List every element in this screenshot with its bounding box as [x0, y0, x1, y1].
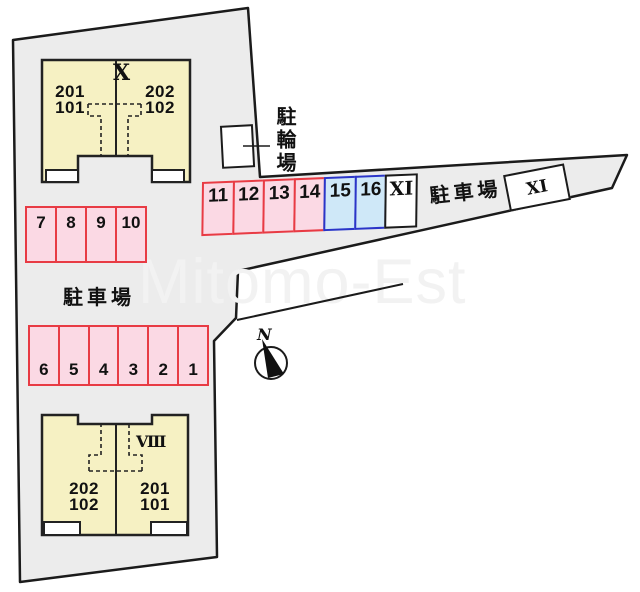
road-edge-line [237, 284, 403, 320]
parking-row-middle: 11 12 13 14 15 16 XI [201, 173, 417, 236]
parking-space: 10 [115, 206, 147, 263]
site-plan-diagram: Mitomo-Est N [0, 0, 640, 592]
parking-space: 2 [147, 325, 179, 386]
parking-space: 12 [232, 179, 265, 234]
parking-space: 15 [324, 176, 357, 231]
building-x-step-left [46, 170, 78, 182]
parking-space: 13 [262, 178, 295, 233]
building-x-right-unit: 202 102 [137, 84, 183, 116]
parking-space: 1 [177, 325, 209, 386]
building-viii-step-left [44, 522, 80, 535]
parking-space: 3 [117, 325, 149, 386]
parking-row-top: 7 8 9 10 [25, 206, 147, 263]
building-viii-label: VIII [136, 432, 165, 451]
parking-row-bottom: 6 5 4 3 2 1 [28, 325, 209, 386]
parking-space: 8 [55, 206, 87, 263]
parking-area-label-left: 駐車場 [63, 281, 135, 310]
building-viii-left-unit: 202 102 [61, 481, 107, 513]
compass-icon [255, 339, 287, 379]
unit-number: 102 [137, 100, 183, 116]
parking-space: 14 [293, 177, 326, 232]
parking-space: 9 [85, 206, 117, 263]
building-x-label: X [113, 60, 130, 86]
bicycle-parking-label: 駐輪場 [270, 106, 299, 175]
compass-north-label: N [257, 325, 272, 344]
unit-number: 102 [61, 497, 107, 513]
unit-number: 101 [132, 497, 178, 513]
building-viii-step-right [151, 522, 187, 535]
building-x-left-unit: 201 101 [47, 84, 93, 116]
parking-space: 6 [28, 325, 60, 386]
unit-number: 101 [47, 100, 93, 116]
parking-space: 11 [201, 181, 234, 236]
parking-space: 16 [354, 175, 387, 230]
parking-space: 7 [25, 206, 57, 263]
parking-space: 4 [88, 325, 120, 386]
parking-space: 5 [58, 325, 90, 386]
building-x-step-right [152, 170, 184, 182]
parking-space: XI [385, 173, 418, 228]
building-viii-right-unit: 201 101 [132, 481, 178, 513]
